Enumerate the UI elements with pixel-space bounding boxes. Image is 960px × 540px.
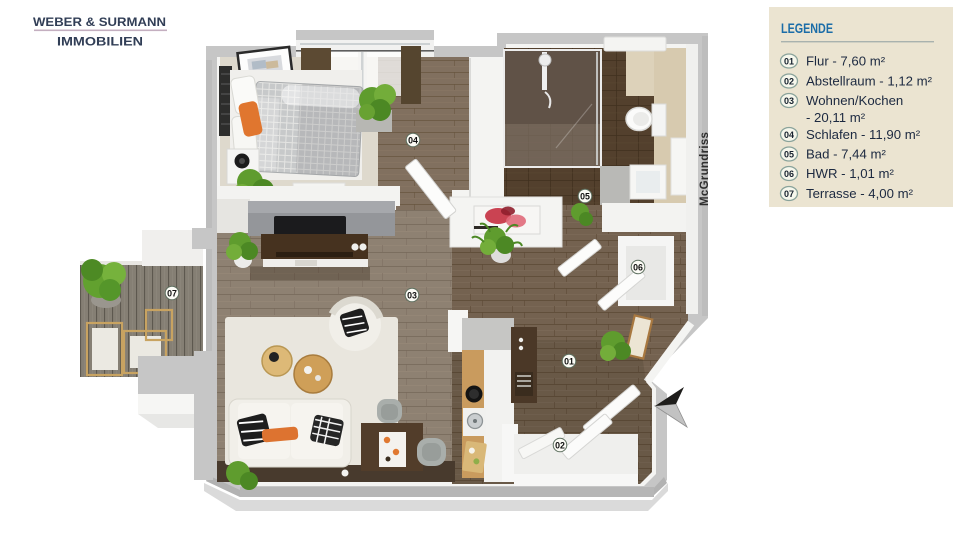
svg-text:05: 05 xyxy=(784,150,794,160)
svg-text:HWR - 1,01 m²: HWR - 1,01 m² xyxy=(806,166,895,181)
svg-text:04: 04 xyxy=(408,136,418,146)
svg-text:Schlafen - 11,90 m²: Schlafen - 11,90 m² xyxy=(806,127,921,142)
svg-text:Flur - 7,60 m²: Flur - 7,60 m² xyxy=(806,54,886,69)
svg-text:IMMOBILIEN: IMMOBILIEN xyxy=(57,37,143,49)
svg-text:03: 03 xyxy=(784,96,794,106)
svg-text:LEGENDE: LEGENDE xyxy=(781,21,833,36)
svg-text:05: 05 xyxy=(580,192,590,202)
svg-text:02: 02 xyxy=(555,441,565,451)
svg-text:WEBER & SURMANN: WEBER & SURMANN xyxy=(33,17,166,29)
svg-text:Terrasse - 4,00 m²: Terrasse - 4,00 m² xyxy=(806,186,914,201)
svg-text:01: 01 xyxy=(784,57,794,67)
svg-text:06: 06 xyxy=(633,263,643,273)
svg-text:03: 03 xyxy=(407,291,417,301)
svg-text:07: 07 xyxy=(784,189,794,199)
svg-text:Abstellraum - 1,12 m²: Abstellraum - 1,12 m² xyxy=(806,74,933,89)
svg-text:Bad - 7,44 m²: Bad - 7,44 m² xyxy=(806,147,886,162)
svg-text:07: 07 xyxy=(167,289,177,299)
svg-text:- 20,11 m²: - 20,11 m² xyxy=(806,110,866,125)
svg-text:06: 06 xyxy=(784,169,794,179)
svg-text:McGrundriss: McGrundriss xyxy=(699,132,711,206)
svg-text:01: 01 xyxy=(564,357,574,367)
svg-text:02: 02 xyxy=(784,77,794,87)
svg-text:Wohnen/Kochen: Wohnen/Kochen xyxy=(806,93,903,108)
svg-text:04: 04 xyxy=(784,130,794,140)
